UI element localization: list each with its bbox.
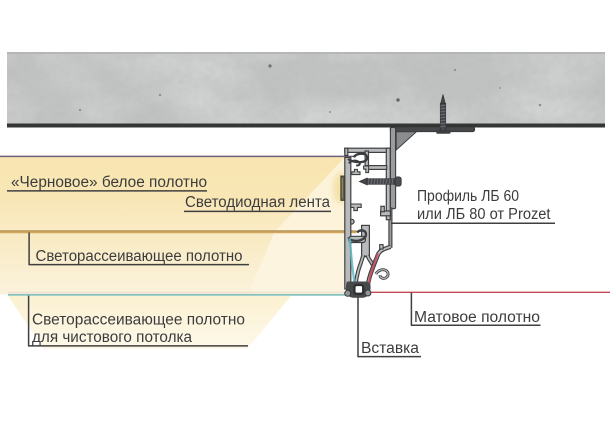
svg-text:Профиль ЛБ 60: Профиль ЛБ 60 <box>417 188 519 205</box>
svg-text:«Черновое» белое полотно: «Черновое» белое полотно <box>11 174 207 191</box>
svg-text:для чистового потолка: для чистового потолка <box>32 329 192 346</box>
svg-text:Вставка: Вставка <box>361 340 419 357</box>
svg-text:Матовое полотно: Матовое полотно <box>414 309 540 326</box>
svg-text:Светорассеивающее полотно: Светорассеивающее полотно <box>32 312 245 329</box>
svg-text:Светодиодная лента: Светодиодная лента <box>185 194 330 211</box>
svg-text:Светорассеивающее полотно: Светорассеивающее полотно <box>36 248 243 265</box>
svg-text:или ЛБ 80 от Prozet: или ЛБ 80 от Prozet <box>417 206 551 223</box>
